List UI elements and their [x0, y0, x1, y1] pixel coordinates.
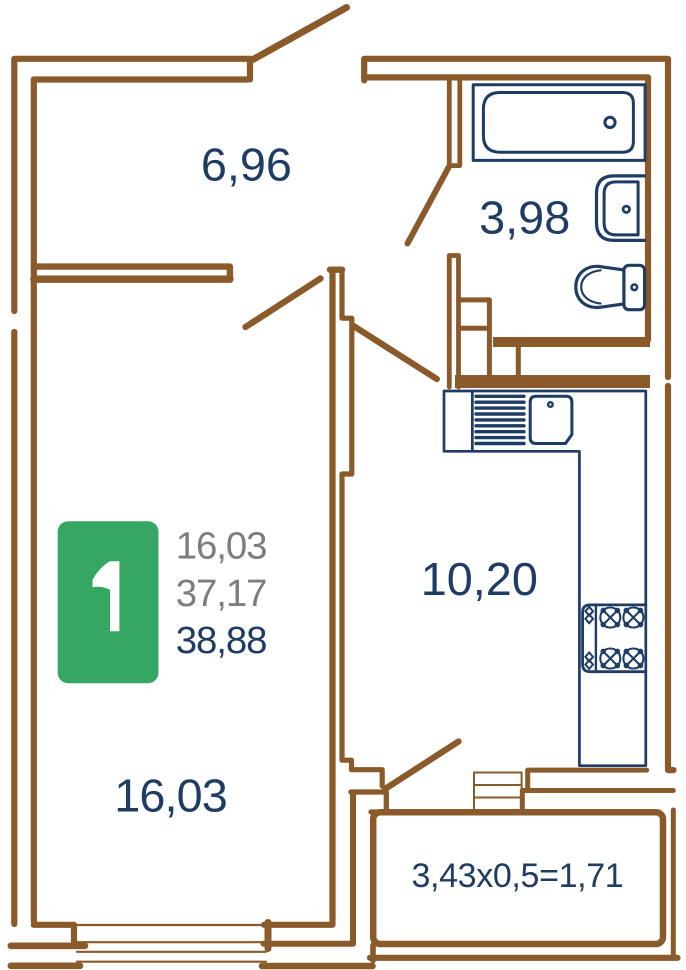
svg-text:6,96: 6,96 [201, 139, 292, 191]
svg-text:16,03: 16,03 [176, 524, 267, 567]
svg-text:16,03: 16,03 [114, 770, 227, 822]
svg-text:38,88: 38,88 [176, 619, 267, 662]
svg-text:10,20: 10,20 [421, 553, 538, 605]
svg-text:3,98: 3,98 [479, 191, 570, 243]
svg-text:3,43x0,5=1,71: 3,43x0,5=1,71 [411, 857, 623, 895]
svg-text:37,17: 37,17 [176, 572, 267, 615]
